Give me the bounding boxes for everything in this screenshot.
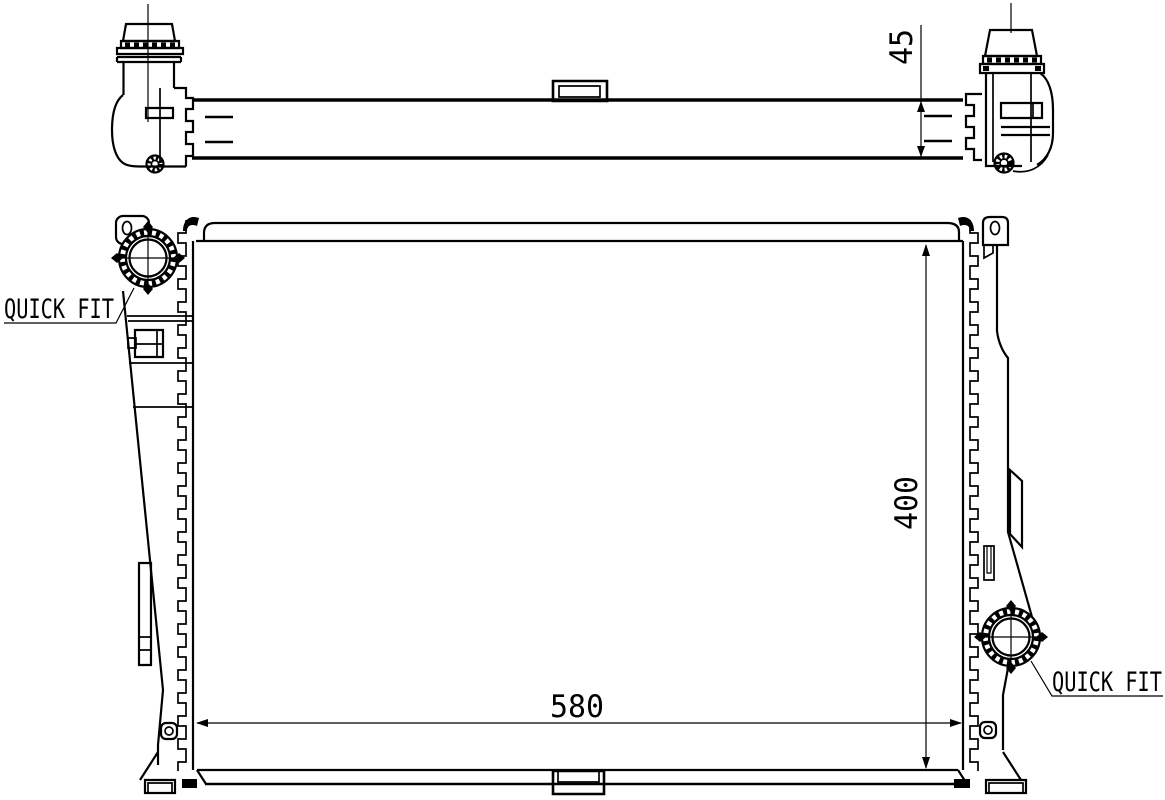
quick-fit-label-bottom: QUICK FIT xyxy=(1052,667,1162,698)
dim-height-label: 400 xyxy=(889,476,925,530)
knurl-tick xyxy=(996,58,1001,63)
bottom-crimp-right xyxy=(954,779,970,788)
knurl-tick xyxy=(1014,58,1019,63)
knurl-tick xyxy=(134,43,139,48)
dim-width-label: 580 xyxy=(550,689,604,725)
knurl-tick xyxy=(1023,58,1028,63)
radiator-technical-drawing: 45 400 580 QUICK FIT QUICK FIT xyxy=(0,0,1165,800)
knurl-tick xyxy=(125,43,130,48)
drawing-canvas: 45 400 580 QUICK FIT QUICK FIT xyxy=(0,0,1165,800)
knurl-tick xyxy=(1005,58,1010,63)
knurl-tick xyxy=(170,43,175,48)
bottom-crimp-left xyxy=(182,779,197,788)
knurl-tick xyxy=(143,43,148,48)
flange-tick xyxy=(1035,66,1041,71)
knurl-tick xyxy=(152,43,157,48)
knurl-tick xyxy=(987,58,992,63)
dim-depth-label: 45 xyxy=(884,29,920,65)
knurl-tick xyxy=(161,43,166,48)
quick-fit-label-top: QUICK FIT xyxy=(4,294,114,325)
background xyxy=(0,0,1165,800)
flange-tick xyxy=(983,66,989,71)
knurl-tick xyxy=(1032,58,1037,63)
